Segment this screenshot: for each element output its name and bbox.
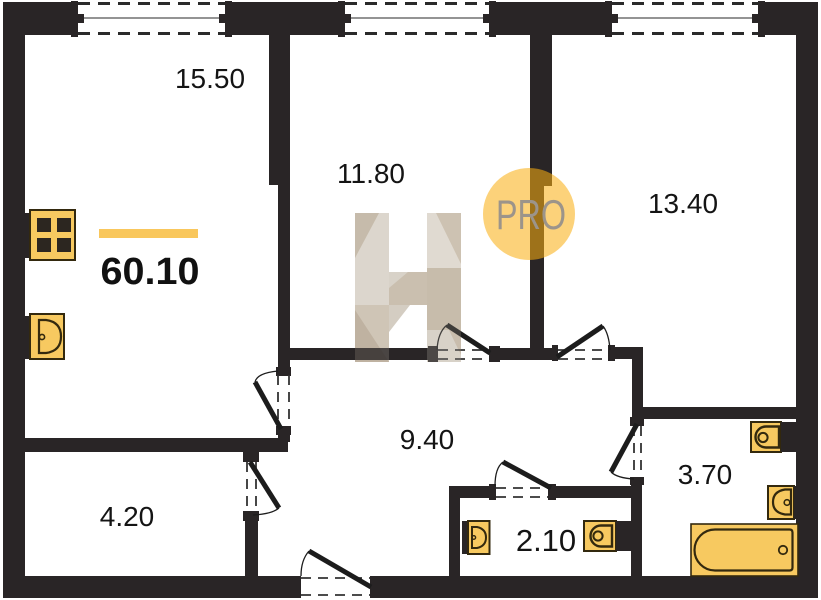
svg-text:15.50: 15.50 (175, 63, 245, 94)
svg-text:9.40: 9.40 (400, 424, 455, 455)
svg-text:PRO: PRO (496, 191, 566, 238)
svg-text:60.10: 60.10 (101, 251, 200, 293)
svg-text:3.70: 3.70 (678, 459, 733, 490)
svg-text:11.80: 11.80 (337, 158, 405, 189)
svg-text:13.40: 13.40 (648, 188, 718, 219)
svg-text:2.10: 2.10 (516, 523, 576, 558)
svg-text:4.20: 4.20 (100, 501, 155, 532)
